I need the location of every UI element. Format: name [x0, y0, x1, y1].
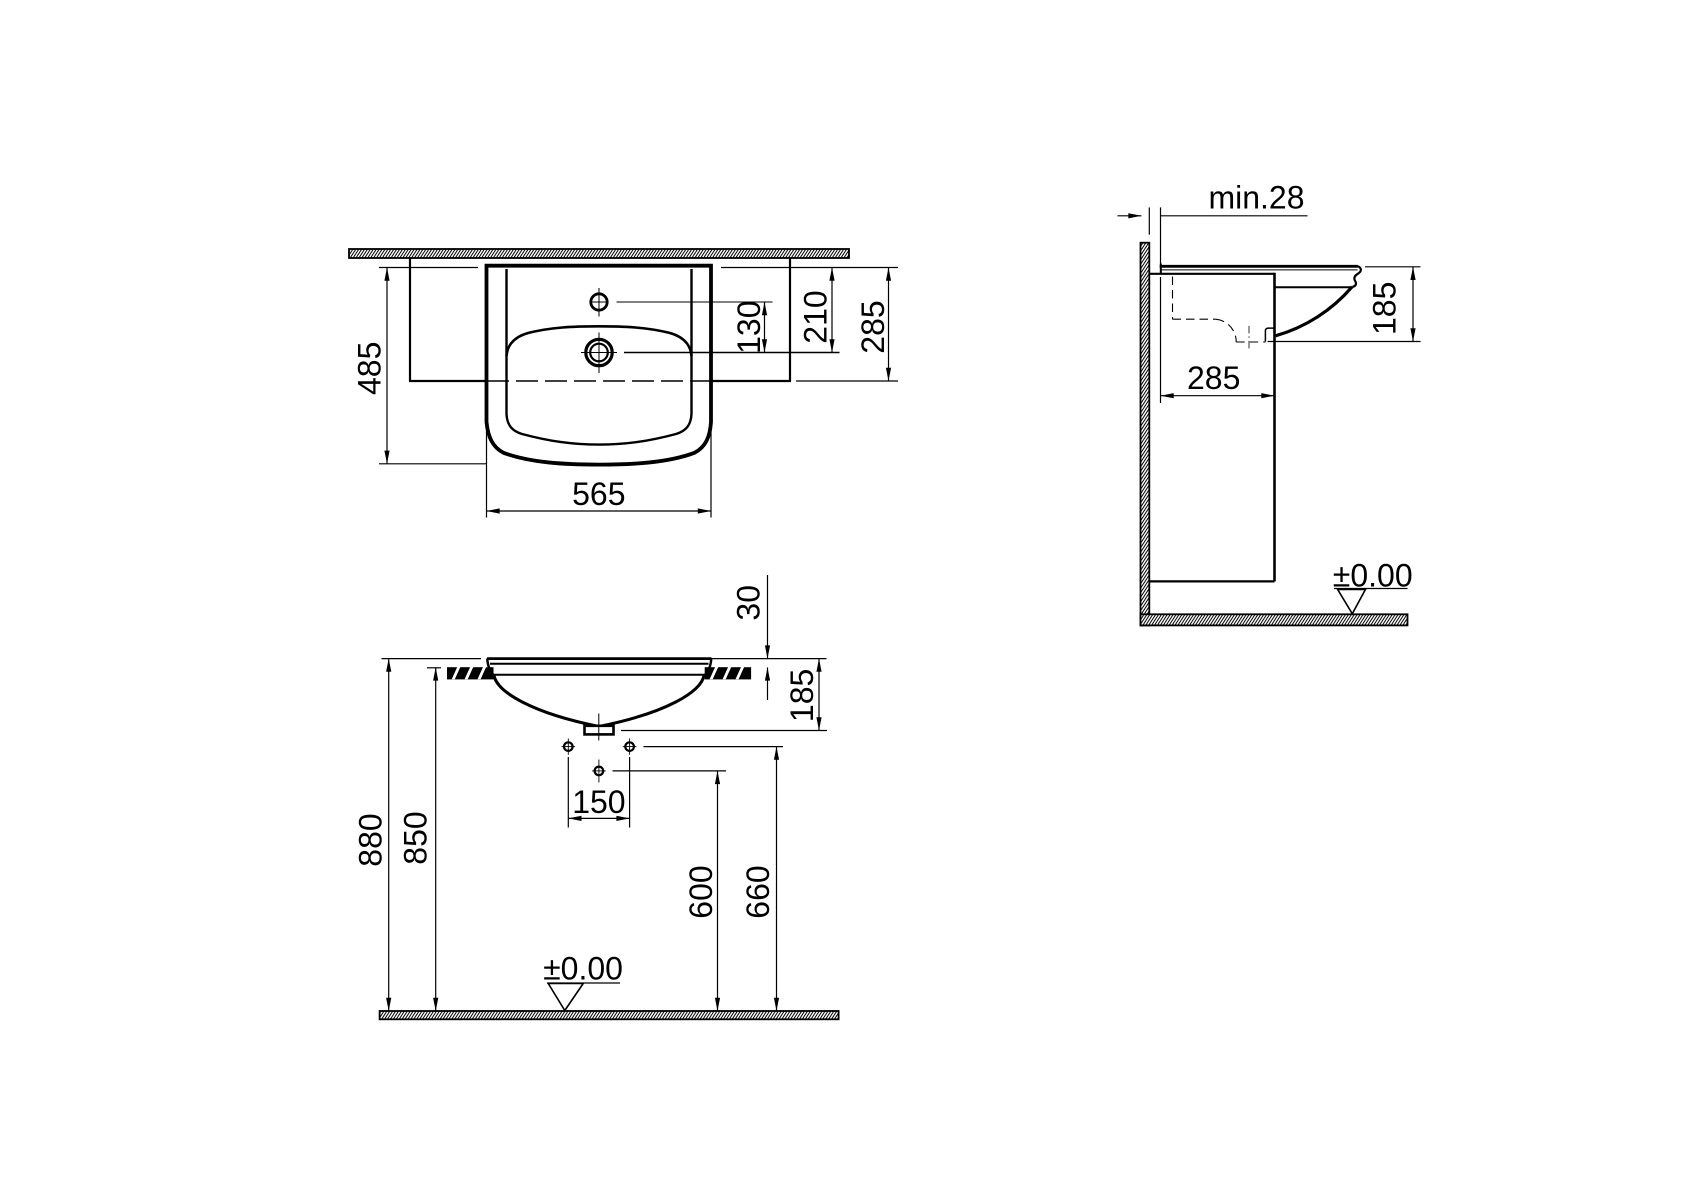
svg-text:485: 485 — [352, 342, 388, 395]
svg-text:660: 660 — [740, 865, 776, 918]
svg-text:185: 185 — [1366, 282, 1402, 335]
svg-text:210: 210 — [798, 290, 834, 343]
svg-text:285: 285 — [855, 300, 891, 353]
svg-text:150: 150 — [572, 784, 625, 820]
svg-text:565: 565 — [572, 476, 625, 512]
svg-text:185: 185 — [784, 669, 820, 722]
svg-text:600: 600 — [683, 865, 719, 918]
svg-text:130: 130 — [731, 301, 767, 354]
svg-text:30: 30 — [731, 585, 767, 621]
svg-text:±0.00: ±0.00 — [543, 951, 623, 987]
svg-text:285: 285 — [1187, 360, 1240, 396]
svg-text:min.28: min.28 — [1208, 179, 1304, 215]
svg-text:850: 850 — [398, 811, 434, 864]
svg-text:880: 880 — [353, 813, 389, 866]
